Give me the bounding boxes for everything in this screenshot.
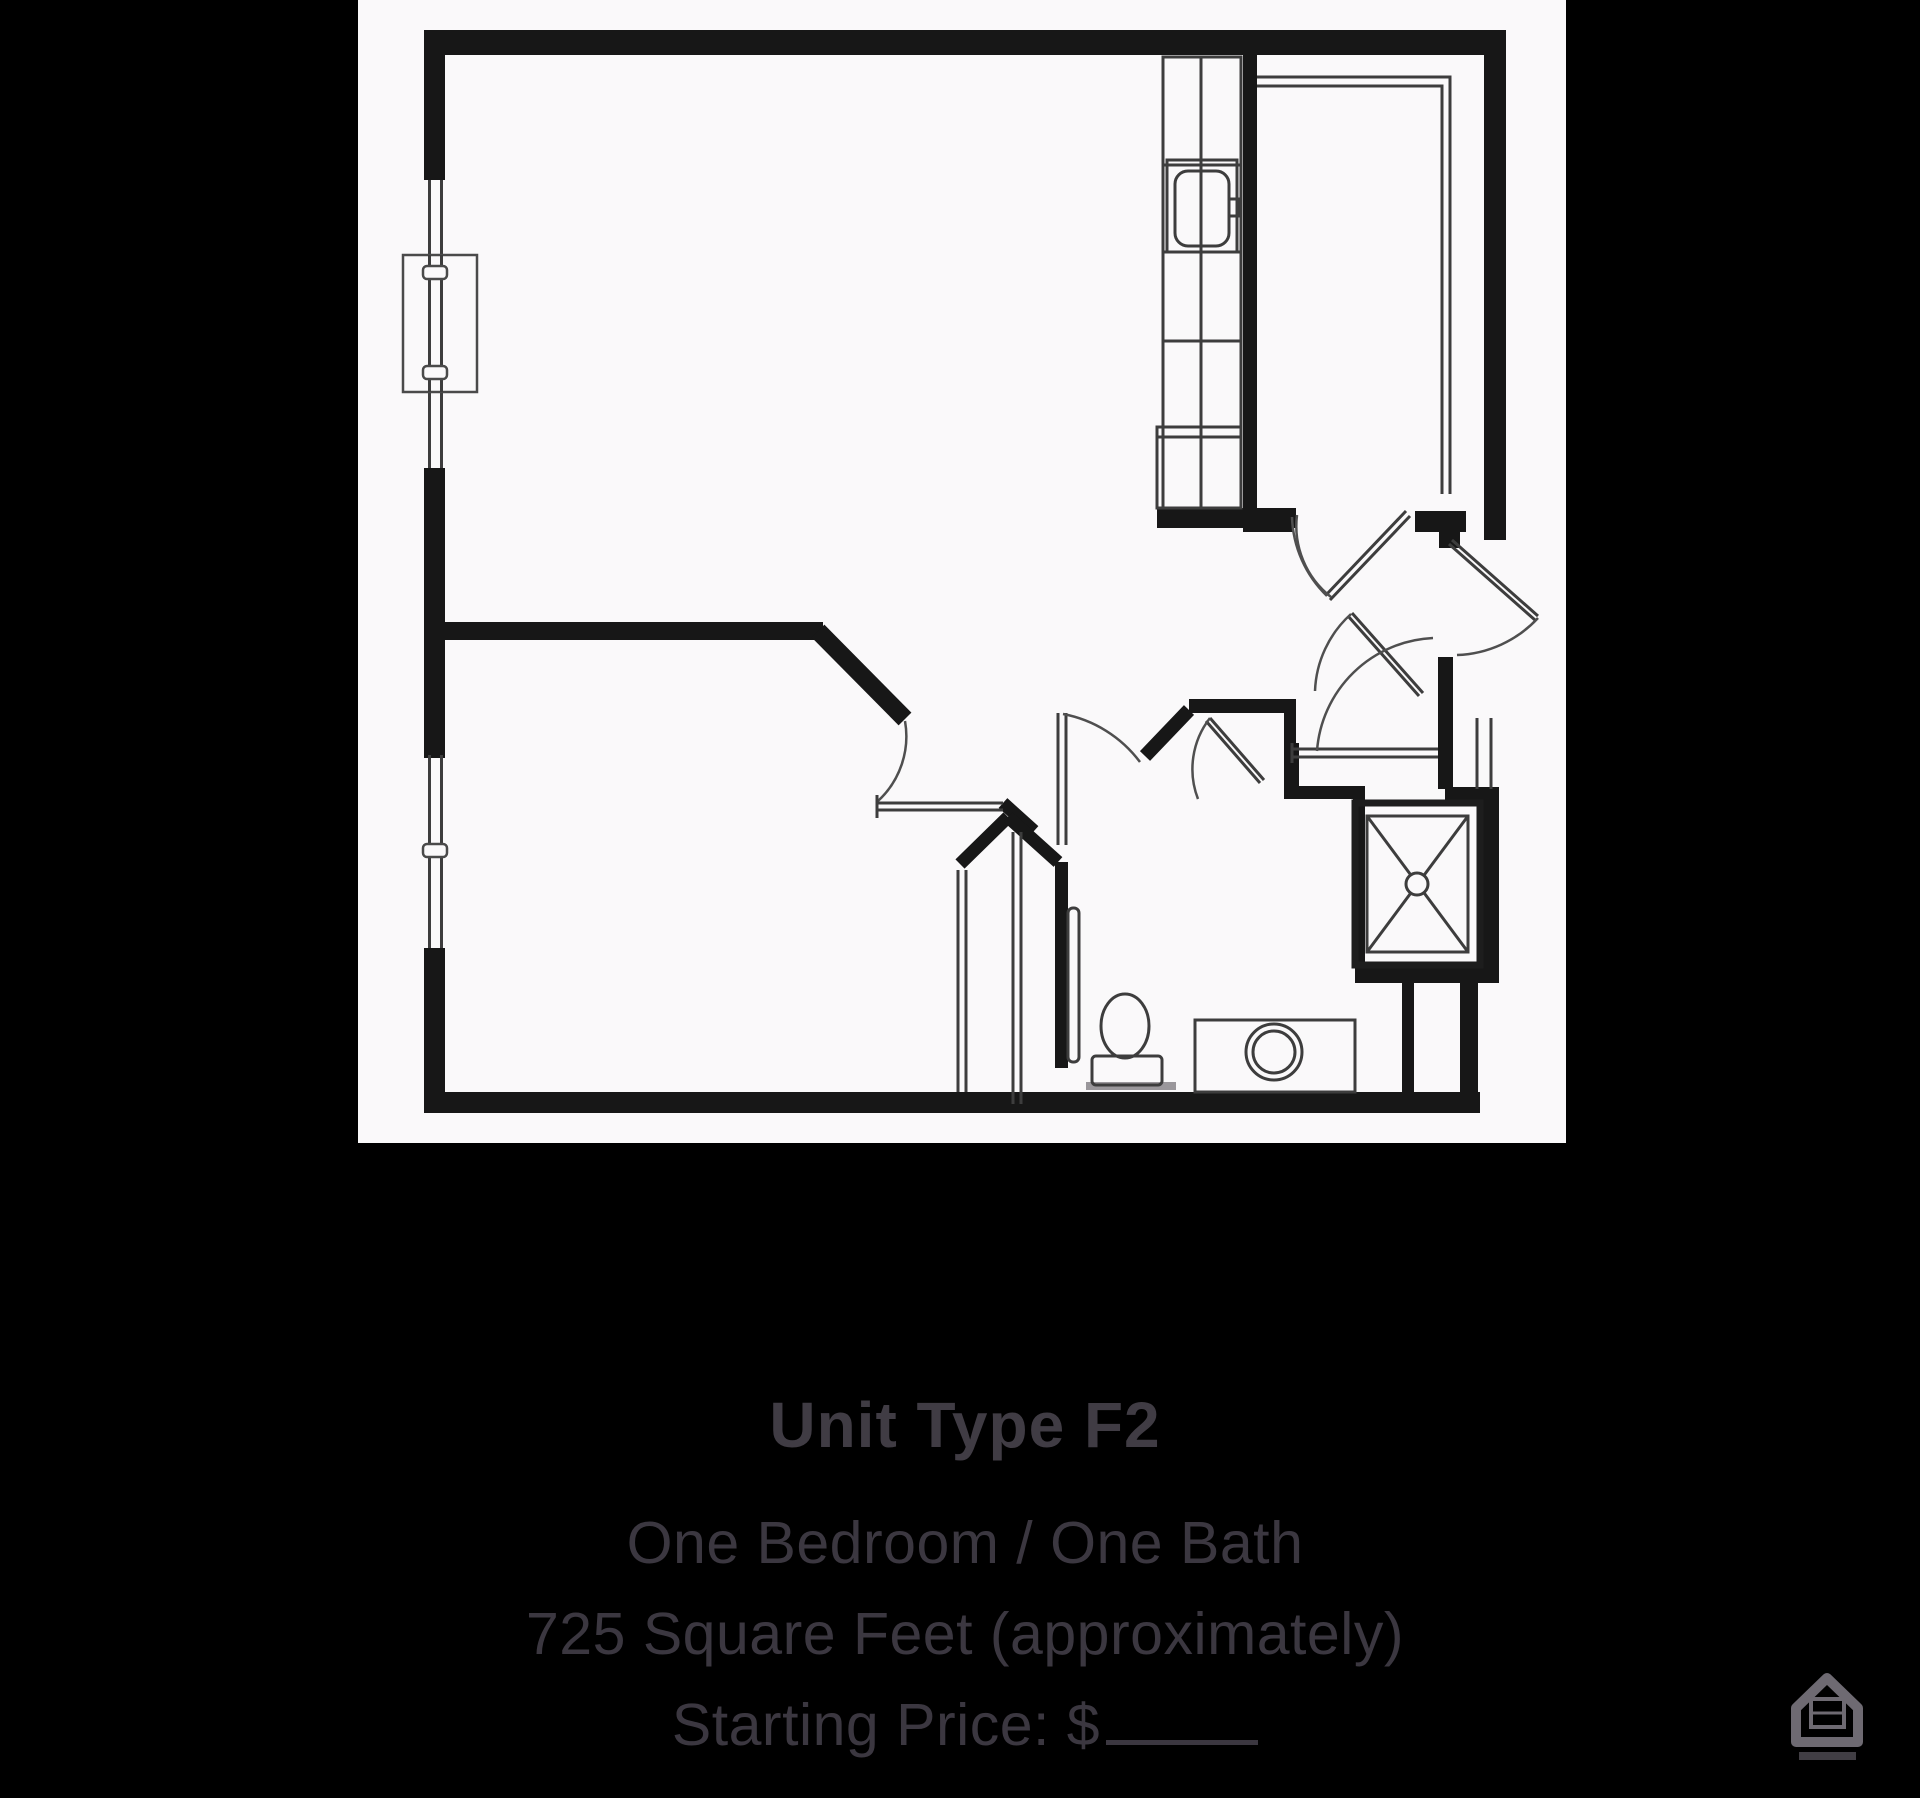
toilet-icon bbox=[1086, 994, 1176, 1090]
bedroom-door bbox=[877, 721, 1003, 818]
floor-plan-drawing bbox=[358, 0, 1566, 1143]
shower-icon bbox=[1355, 803, 1480, 965]
floor-plan-image bbox=[358, 0, 1566, 1143]
window-lower bbox=[423, 755, 447, 948]
vanity-sink-icon bbox=[1195, 1020, 1355, 1092]
coat-closet bbox=[1292, 638, 1491, 789]
kitchen-counter bbox=[1157, 57, 1241, 508]
window-upper bbox=[403, 180, 477, 468]
price-blank-line bbox=[1106, 1700, 1258, 1745]
pantry-room bbox=[1257, 77, 1450, 494]
caption-square-feet: 725 Square Feet (approximately) bbox=[360, 1589, 1570, 1680]
page-background: { "caption": { "title": "Unit Type F2", … bbox=[0, 0, 1920, 1798]
caption-starting-price: Starting Price: $ bbox=[360, 1680, 1570, 1771]
unit-title: Unit Type F2 bbox=[360, 1388, 1570, 1462]
bathroom-door bbox=[1058, 713, 1140, 1062]
bedroom-closet bbox=[958, 832, 1021, 1104]
caption-block: Unit Type F2 One Bedroom / One Bath 725 … bbox=[360, 1388, 1570, 1771]
house-logo-icon bbox=[1781, 1668, 1873, 1768]
caption-bed-bath: One Bedroom / One Bath bbox=[360, 1498, 1570, 1589]
